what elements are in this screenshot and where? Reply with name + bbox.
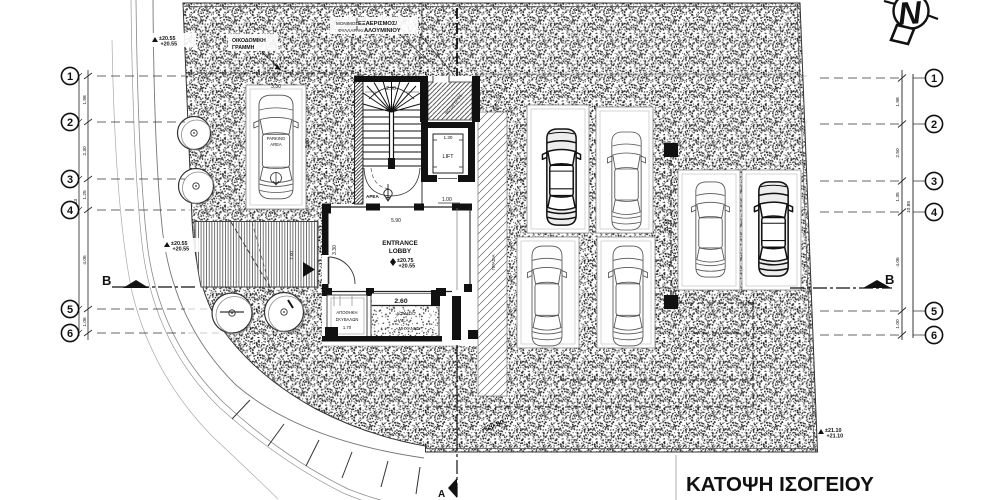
svg-text:+20.55: +20.55 bbox=[173, 247, 190, 253]
svg-text:1.00: 1.00 bbox=[442, 197, 452, 203]
svg-text:2.30: 2.30 bbox=[82, 146, 88, 156]
svg-text:2.90: 2.90 bbox=[386, 86, 396, 92]
svg-text:3.30: 3.30 bbox=[332, 245, 338, 255]
svg-text:A: A bbox=[438, 489, 445, 500]
svg-text:5: 5 bbox=[67, 304, 73, 316]
svg-text:6: 6 bbox=[67, 328, 73, 340]
svg-text:5.00: 5.00 bbox=[664, 220, 670, 230]
svg-text:ΣΚΥΒΑΛΩΝ: ΣΚΥΒΑΛΩΝ bbox=[336, 317, 359, 322]
svg-text:1.98: 1.98 bbox=[82, 95, 88, 105]
svg-text:3,30: 3,30 bbox=[271, 84, 281, 90]
svg-text:3: 3 bbox=[931, 176, 937, 188]
svg-text:ΠΡΑΣΙΑ: ΠΡΑΣΙΑ bbox=[491, 254, 496, 270]
svg-text:ΟΙΚΟΔΟΜΙΚΗ: ΟΙΚΟΔΟΜΙΚΗ bbox=[232, 38, 266, 44]
svg-text:ΑΛΟΥΜΙΝΙΟΥ: ΑΛΟΥΜΙΝΙΟΥ bbox=[364, 28, 401, 34]
svg-text:+20.55: +20.55 bbox=[399, 264, 416, 270]
svg-text:2.60: 2.60 bbox=[394, 298, 407, 305]
svg-text:1: 1 bbox=[931, 73, 937, 85]
svg-text:5: 5 bbox=[931, 306, 937, 318]
svg-text:1.06: 1.06 bbox=[82, 317, 88, 327]
svg-text:2.50: 2.50 bbox=[895, 148, 901, 158]
svg-text:4: 4 bbox=[931, 207, 938, 219]
svg-text:5.00: 5.00 bbox=[305, 138, 311, 148]
svg-text:N: N bbox=[897, 0, 923, 32]
svg-text:ΓΡΑΜΜΗ: ΓΡΑΜΜΗ bbox=[232, 45, 255, 51]
svg-text:ΦΥΛΛΑΡΑΚΙ: ΦΥΛΛΑΡΑΚΙ bbox=[338, 28, 364, 33]
svg-text:10.85: 10.85 bbox=[906, 201, 912, 213]
svg-text:3: 3 bbox=[67, 174, 73, 186]
svg-text:4.06: 4.06 bbox=[895, 257, 901, 267]
svg-text:B: B bbox=[885, 272, 894, 287]
svg-text:+20.55: +20.55 bbox=[161, 42, 178, 48]
svg-text:ΔΩΜΑΤΙΟ: ΔΩΜΑΤΙΟ bbox=[397, 311, 417, 316]
svg-text:5.90: 5.90 bbox=[391, 218, 401, 224]
svg-text:4.06: 4.06 bbox=[82, 255, 88, 265]
svg-text:4: 4 bbox=[67, 205, 74, 217]
svg-text:ΜΟΝΙΜΟΣ: ΜΟΝΙΜΟΣ bbox=[336, 21, 358, 26]
svg-text:B: B bbox=[102, 273, 111, 288]
svg-text:1.00: 1.00 bbox=[895, 319, 901, 329]
svg-text:ΠΡΑΣΙΑ: ΠΡΑΣΙΑ bbox=[495, 96, 500, 112]
svg-text:ΜΗΧΑΝΗΣ: ΜΗΧΑΝΗΣ bbox=[399, 326, 420, 331]
svg-text:ΑΡΕΑ: ΑΡΕΑ bbox=[366, 194, 379, 199]
svg-text:LOBBY: LOBBY bbox=[389, 248, 412, 255]
svg-text:PARKING: PARKING bbox=[267, 136, 286, 141]
svg-text:ΗΛΕ.: ΗΛΕ. bbox=[396, 318, 406, 323]
svg-text:2: 2 bbox=[931, 119, 937, 131]
svg-text:1.30: 1.30 bbox=[444, 135, 453, 140]
svg-text:6: 6 bbox=[931, 330, 937, 342]
svg-text:+21.10: +21.10 bbox=[827, 434, 844, 440]
svg-text:1: 1 bbox=[67, 71, 73, 83]
svg-text:ΚΑΤΟΨΗ ΙΣΟΓΕΙΟΥ: ΚΑΤΟΨΗ ΙΣΟΓΕΙΟΥ bbox=[686, 473, 874, 496]
svg-text:1.35: 1.35 bbox=[895, 192, 901, 202]
svg-text:7.00: 7.00 bbox=[289, 251, 294, 260]
svg-text:ΑΠΟΘΗΚΗ: ΑΠΟΘΗΚΗ bbox=[336, 310, 357, 315]
svg-text:ΕΞΑΕΡΙΣΜΟΣ/: ΕΞΑΕΡΙΣΜΟΣ/ bbox=[358, 21, 397, 27]
svg-text:2: 2 bbox=[67, 117, 73, 129]
svg-text:AREA: AREA bbox=[270, 142, 282, 147]
svg-text:1.98: 1.98 bbox=[895, 97, 901, 107]
svg-text:1.70: 1.70 bbox=[343, 325, 352, 330]
svg-text:ENTRANCE: ENTRANCE bbox=[382, 240, 418, 247]
svg-text:6.97: 6.97 bbox=[745, 301, 754, 306]
svg-text:LIFT: LIFT bbox=[442, 154, 454, 160]
svg-text:1.25: 1.25 bbox=[82, 190, 88, 200]
